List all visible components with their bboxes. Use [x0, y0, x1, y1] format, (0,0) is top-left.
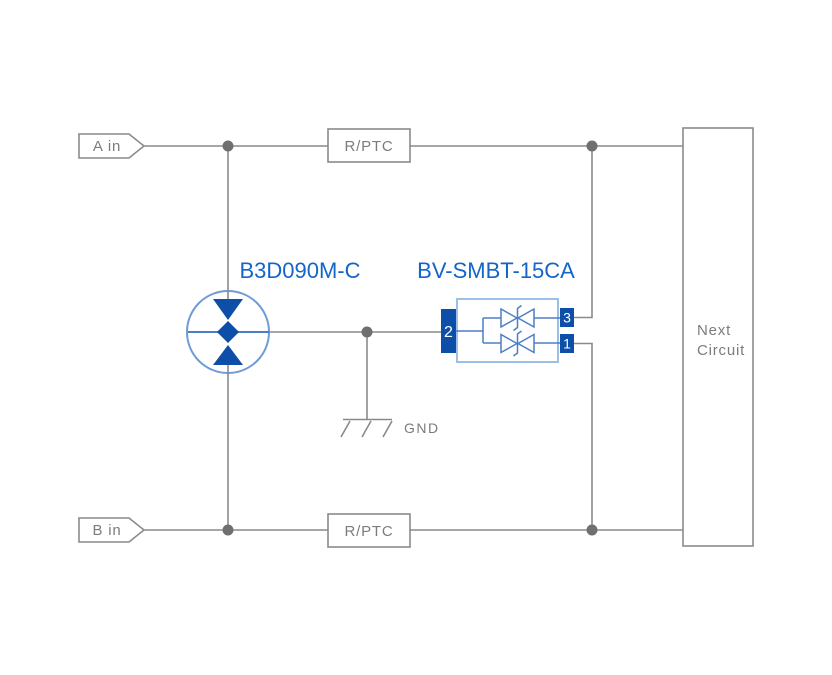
next-circuit-label-line2: Circuit [697, 342, 745, 359]
tvs-pin-1-number: 1 [563, 336, 571, 352]
tvs-part-label: BV-SMBT-15CA [417, 258, 575, 283]
terminal-a-in: A in [79, 134, 144, 158]
terminal-b-in: B in [79, 518, 144, 542]
junction-b-right [587, 525, 598, 536]
tvs-component: 2 3 1 [441, 299, 574, 362]
rptc-bottom: R/PTC [328, 514, 410, 547]
circuit-diagram-canvas: A in B in R/PTC R/PTC Next Circuit [0, 0, 832, 675]
gnd-slash-3 [383, 421, 392, 437]
gnd-slash-1 [341, 421, 350, 437]
junction-a-left [223, 141, 234, 152]
tvs-pin-2-number: 2 [444, 324, 453, 341]
gdt-part-label: B3D090M-C [239, 258, 360, 283]
a-in-label: A in [93, 138, 121, 155]
junction-mid-gnd [362, 327, 373, 338]
junction-b-left [223, 525, 234, 536]
next-circuit-label-line1: Next [697, 322, 731, 339]
b-in-label: B in [92, 522, 121, 539]
wire-pin3-to-a-line [573, 146, 592, 318]
junction-a-right [587, 141, 598, 152]
tvs-pin-3-number: 3 [563, 310, 571, 326]
wire-pin1-to-b-line [573, 344, 592, 531]
rptc-top-label: R/PTC [345, 138, 394, 155]
gnd-label: GND [404, 420, 440, 436]
rptc-bottom-label: R/PTC [345, 523, 394, 540]
next-circuit-block: Next Circuit [683, 128, 753, 546]
gnd-slash-2 [362, 421, 371, 437]
rptc-top: R/PTC [328, 129, 410, 162]
circuit-diagram: A in B in R/PTC R/PTC Next Circuit [0, 0, 832, 675]
